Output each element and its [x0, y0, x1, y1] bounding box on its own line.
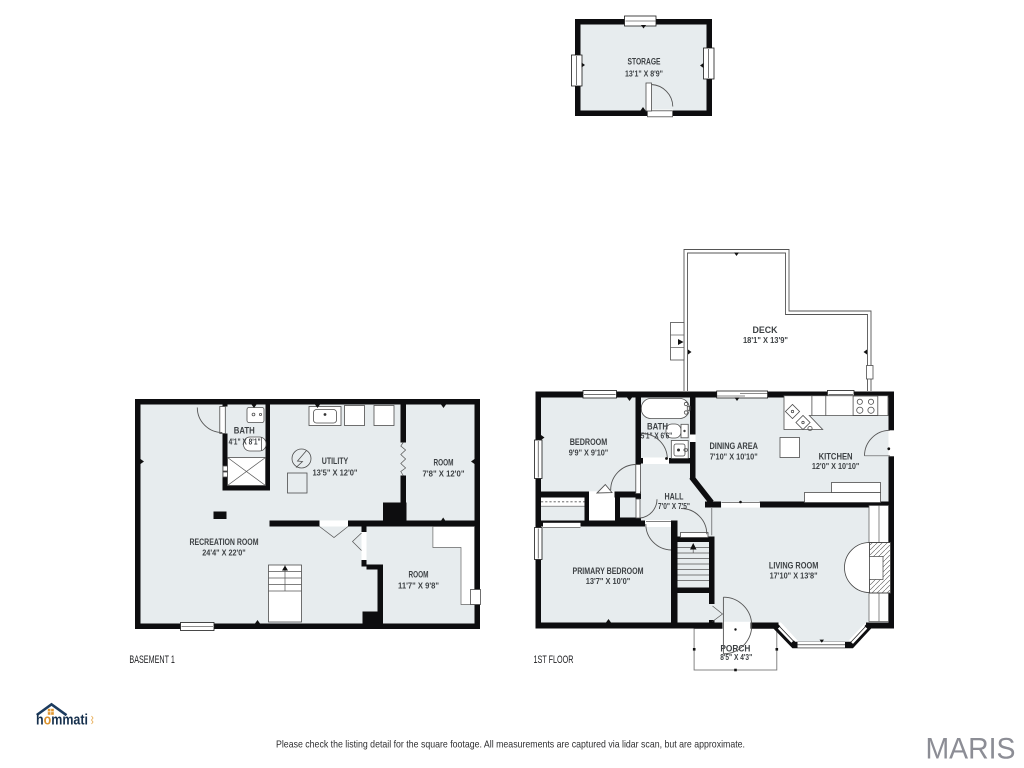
svg-text:MARIS: MARIS — [926, 733, 1016, 766]
svg-text:BEDROOM: BEDROOM — [570, 437, 608, 447]
svg-text:7'10" X 10'10": 7'10" X 10'10" — [710, 451, 758, 461]
svg-text:4'1" X 8'1": 4'1" X 8'1" — [229, 437, 261, 447]
svg-text:7'8" X 12'0": 7'8" X 12'0" — [423, 469, 465, 479]
svg-text:PRIMARY BEDROOM: PRIMARY BEDROOM — [573, 566, 644, 576]
svg-text:11'7" X 9'8": 11'7" X 9'8" — [398, 581, 439, 591]
svg-text:Please check the listing detai: Please check the listing detail for the … — [276, 739, 745, 751]
svg-text:24'4" X 22'0": 24'4" X 22'0" — [202, 548, 246, 558]
svg-text:9'9" X 9'10": 9'9" X 9'10" — [569, 447, 609, 457]
svg-text:8'5" X 4'3": 8'5" X 4'3" — [720, 652, 752, 662]
svg-text:18'1" X 13'9": 18'1" X 13'9" — [743, 335, 788, 345]
svg-text:UTILITY: UTILITY — [322, 456, 349, 466]
svg-text:BASEMENT 1: BASEMENT 1 — [129, 654, 175, 666]
svg-text:STORAGE: STORAGE — [628, 57, 661, 67]
svg-text:17'10" X 13'8": 17'10" X 13'8" — [770, 570, 818, 580]
svg-text:LIVING ROOM: LIVING ROOM — [769, 561, 819, 571]
svg-text:7'0" X 7'5": 7'0" X 7'5" — [658, 501, 690, 511]
svg-text:13'5" X 12'0": 13'5" X 12'0" — [313, 468, 358, 478]
svg-text:13'1" X 8'9": 13'1" X 8'9" — [625, 69, 663, 79]
svg-text:5'1" X 6'6": 5'1" X 6'6" — [641, 430, 673, 440]
svg-text:13'7" X 10'0": 13'7" X 10'0" — [586, 576, 631, 586]
svg-text:RECREATION ROOM: RECREATION ROOM — [190, 537, 259, 547]
svg-text:1ST FLOOR: 1ST FLOOR — [534, 654, 574, 666]
svg-text:BATH: BATH — [234, 426, 255, 436]
svg-text:ROOM: ROOM — [434, 458, 454, 468]
svg-text:hommati: hommati — [36, 713, 88, 729]
svg-text:12'0" X 10'10": 12'0" X 10'10" — [812, 461, 860, 471]
svg-text:DINING AREA: DINING AREA — [709, 441, 758, 451]
svg-text:DECK: DECK — [753, 325, 778, 335]
svg-text:ROOM: ROOM — [409, 570, 429, 580]
